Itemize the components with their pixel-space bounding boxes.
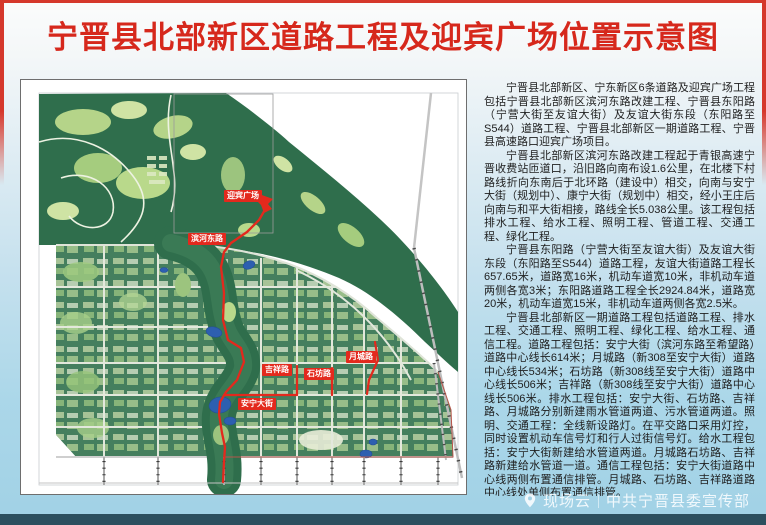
map-panel: 迎宾广场 滨河东路 吉祥路 石坊路 月城路 安宁大街 (20, 79, 467, 495)
footer-divider (598, 494, 599, 508)
description-paragraph: 宁晋县北部新区一期道路工程包括道路工程、排水工程、交通工程、照明工程、绿化工程、… (484, 312, 755, 497)
location-pin-icon (524, 493, 536, 508)
map-label-yuecheng-road: 月城路 (346, 351, 376, 363)
map-label-jixiang-road: 吉祥路 (262, 364, 292, 376)
bottom-bar (0, 514, 766, 525)
city-planning-map-image (21, 80, 466, 494)
page-title: 宁晋县北部新区道路工程及迎宾广场位置示意图 (0, 12, 766, 57)
map-label-binhe-east-road: 滨河东路 (188, 233, 226, 245)
description-paragraph: 宁晋县北部新区滨河东路改建工程起于青银高速宁晋收费站匝道口，沿旧路向南布设1.6… (484, 150, 755, 245)
frame-top-border (0, 0, 766, 3)
map-label-welcome-plaza: 迎宾广场 (224, 190, 262, 202)
map-label-shifang-road: 石坊路 (304, 368, 334, 380)
map-label-anning-street: 安宁大街 (238, 398, 276, 410)
description-paragraph: 宁晋县东阳路（宁营大街至友谊大街）及友谊大街东段（东阳路至S544）道路工程，友… (484, 244, 755, 312)
attribution-footer: 现场云 中共宁晋县委宣传部 (524, 490, 750, 511)
footer-publisher: 中共宁晋县委宣传部 (606, 490, 750, 511)
project-description: 宁晋县北部新区、宁东新区6条道路及迎宾广场工程包括宁晋县北部新区滨河东路改建工程… (484, 82, 755, 496)
description-paragraph: 宁晋县北部新区、宁东新区6条道路及迎宾广场工程包括宁晋县北部新区滨河东路改建工程… (484, 82, 755, 150)
footer-source: 现场云 (543, 490, 591, 511)
